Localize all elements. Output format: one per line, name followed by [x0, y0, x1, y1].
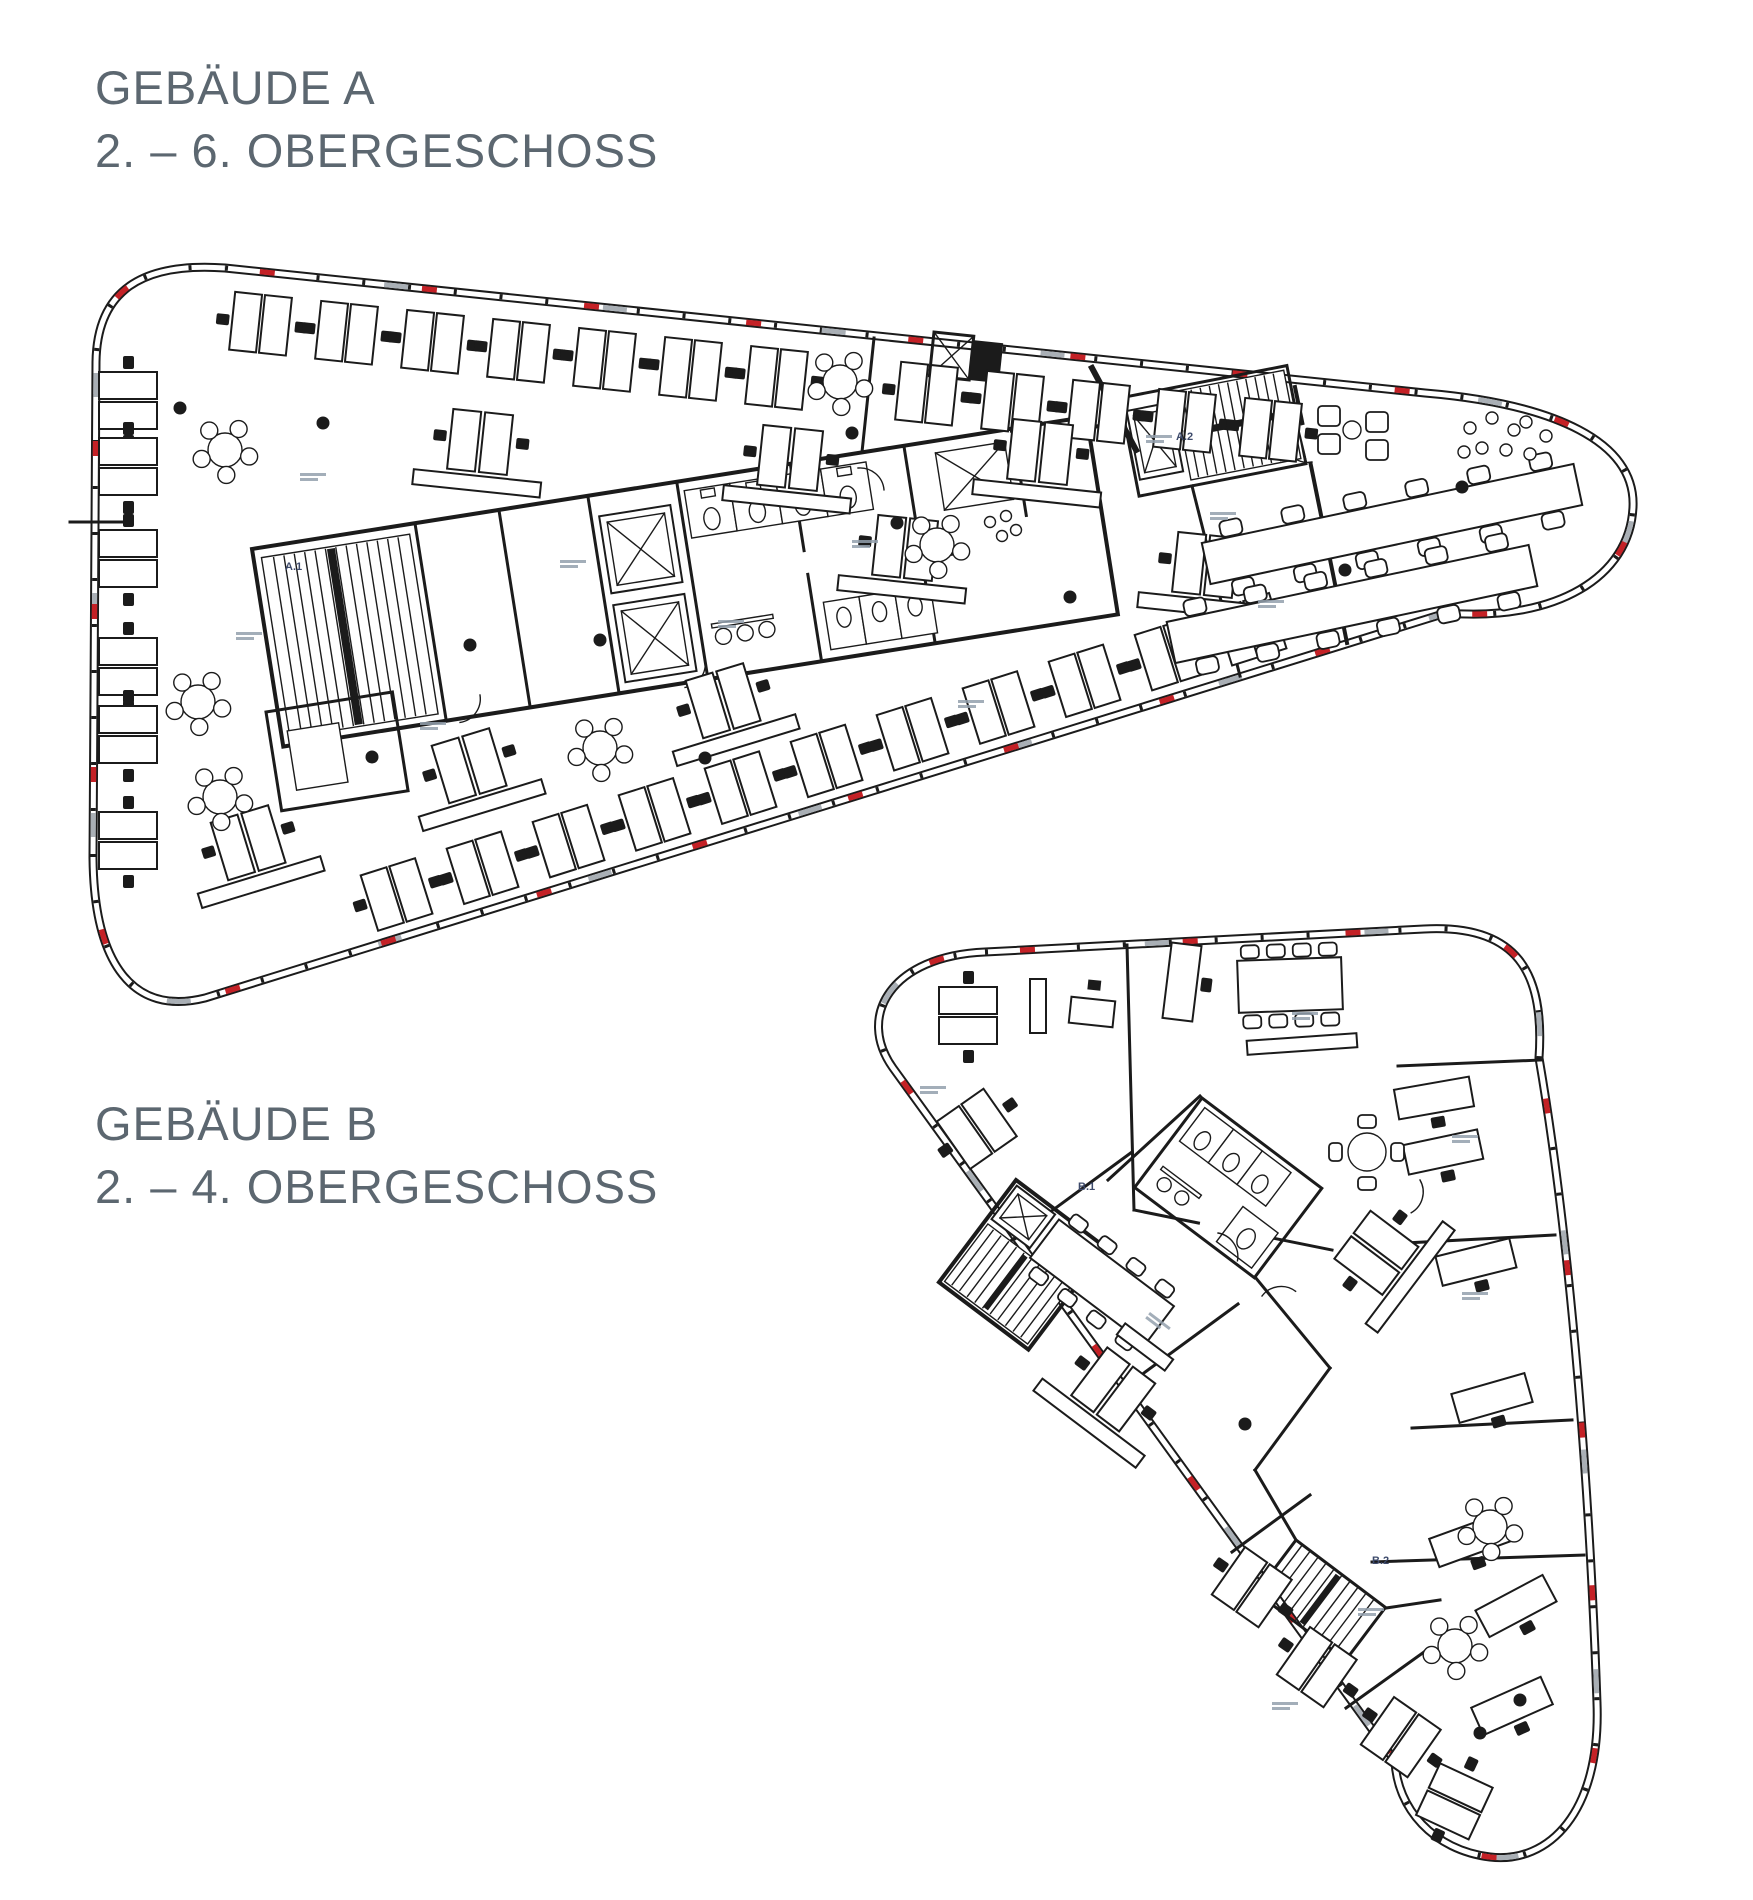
desk [1394, 1077, 1477, 1135]
column-dot [1514, 1694, 1527, 1707]
t-desk-group [1315, 1183, 1455, 1333]
stools [985, 511, 1022, 542]
floorplan-canvas: GEBÄUDE A 2. – 6. OBERGESCHOSS GEBÄUDE B… [0, 0, 1753, 1900]
desk [1403, 1129, 1487, 1189]
desk-pair [729, 344, 827, 411]
round-table [808, 353, 872, 416]
column-dot [1339, 564, 1352, 577]
column-dot [366, 751, 379, 764]
column-dot [594, 634, 607, 647]
column-dot [1474, 1727, 1487, 1740]
column-dot [317, 417, 330, 430]
t-desk-group [412, 406, 548, 498]
desk [1475, 1575, 1563, 1650]
desk [1451, 1373, 1536, 1437]
column-dot [1456, 481, 1469, 494]
stair-core-label-b2: B.2 [1372, 1555, 1389, 1567]
desk-pair [299, 299, 397, 366]
column-dot [1064, 591, 1077, 604]
round-table [166, 673, 230, 736]
room-label-blob [236, 632, 262, 640]
round-table-four [1329, 1115, 1404, 1190]
wc-core [1135, 1098, 1322, 1278]
building-b-plan: B.1 B.2 [879, 929, 1598, 1858]
meeting-table [1020, 1208, 1183, 1358]
building-b-title: GEBÄUDE B [95, 1097, 378, 1150]
column-dot [699, 752, 712, 765]
building-a-title: GEBÄUDE A [95, 61, 376, 114]
stools [1458, 412, 1552, 460]
room-label-blob [1272, 1702, 1298, 1710]
column-dot [891, 517, 904, 530]
building-a-subtitle: 2. – 6. OBERGESCHOSS [95, 124, 658, 177]
building-b-furniture [920, 942, 1564, 1854]
desk-pair [99, 796, 157, 888]
desk-pair [557, 326, 655, 393]
building-b-subtitle: 2. – 4. OBERGESCHOSS [95, 1160, 658, 1213]
desk [1471, 1677, 1559, 1749]
room-label-blob [1462, 1292, 1488, 1300]
meeting-table [1237, 942, 1344, 1029]
desk [1435, 1238, 1520, 1300]
desk [1162, 942, 1216, 1023]
column-dot [464, 639, 477, 652]
stair-core-label-a2: A.2 [1176, 431, 1193, 443]
column-dot [1239, 1418, 1252, 1431]
t-desk-group [1033, 1328, 1183, 1468]
desk-pair [213, 290, 311, 357]
stair-core-label-a1: A.1 [285, 561, 302, 573]
sideboard [1247, 1033, 1358, 1055]
column-dot [846, 427, 859, 440]
round-table [193, 421, 257, 484]
desk-pair [99, 514, 157, 606]
round-table [568, 719, 632, 782]
t-desk-group [400, 718, 546, 831]
column-dot [174, 402, 187, 415]
building-a-plan: A.1 A.2 [70, 267, 1633, 1001]
sideboard [1030, 979, 1046, 1033]
desk-pair [385, 308, 483, 375]
desk-pair [643, 335, 741, 402]
stair-core-label-b1: B.1 [1078, 1181, 1095, 1193]
desk-pair [471, 317, 569, 384]
room-label-blob [920, 1086, 946, 1094]
round-table [1423, 1617, 1487, 1680]
building-a-walls [70, 332, 1347, 811]
lounge-chairs [1318, 406, 1388, 460]
desk-pair [939, 971, 997, 1063]
desk-pair [1409, 1746, 1500, 1854]
room-label-blob [560, 560, 586, 568]
room-label-blob [300, 473, 326, 481]
floorplan-page: GEBÄUDE A 2. – 6. OBERGESCHOSS GEBÄUDE B… [0, 0, 1753, 1900]
door-arc [1399, 1180, 1432, 1213]
small-table [1069, 978, 1117, 1027]
